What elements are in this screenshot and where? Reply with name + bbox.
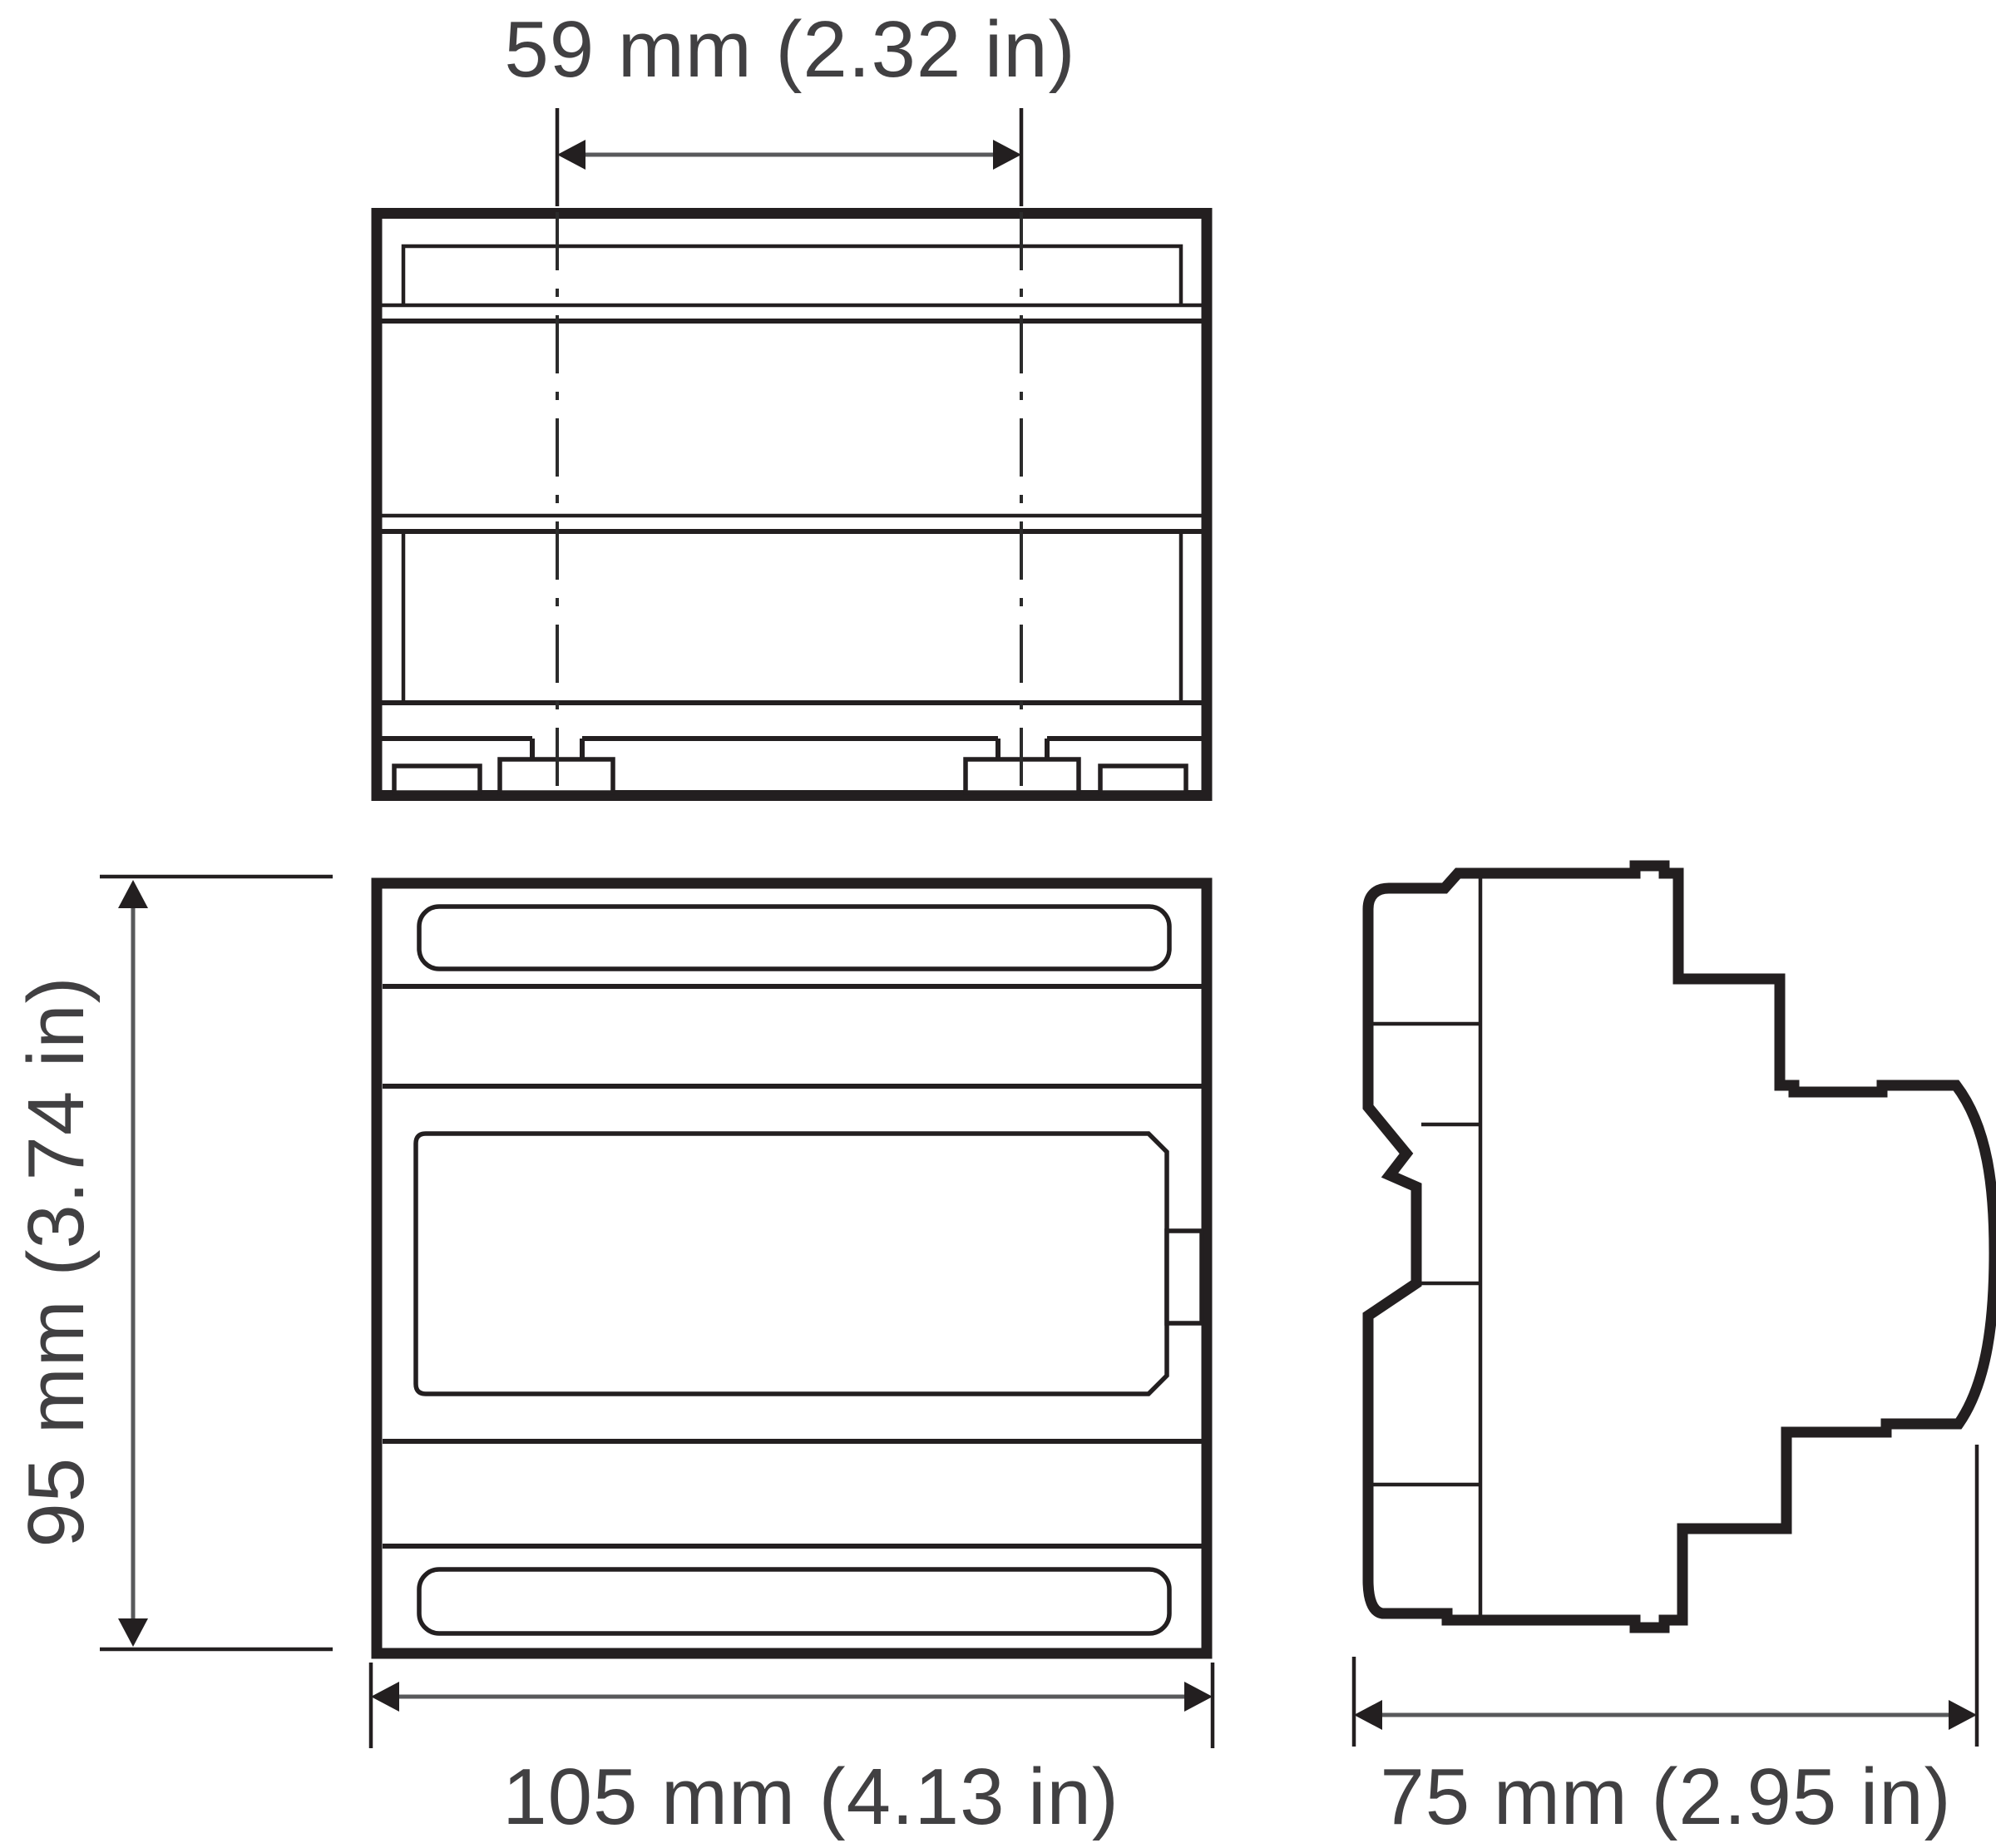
dimension-mount-spacing: 59 mm (2.32 in) [504, 5, 1075, 206]
top-view-foot-left-small [394, 766, 480, 793]
dimension-drawing: 59 mm (2.32 in) 95 mm (3.74 in) 105 mm (… [0, 0, 1996, 1848]
dimension-label-width: 105 mm (4.13 in) [502, 1752, 1119, 1841]
arrowhead-right-icon [1184, 1682, 1213, 1712]
front-view-top-terminal-cover [419, 907, 1169, 969]
top-view [377, 212, 1207, 796]
dimension-label-height: 95 mm (3.74 in) [12, 976, 101, 1547]
arrowhead-up-icon [118, 880, 148, 908]
arrowhead-right-icon [993, 140, 1021, 170]
dimension-label-depth: 75 mm (2.95 in) [1380, 1752, 1951, 1841]
top-view-foot-right-small [1100, 766, 1186, 793]
front-view-side-latch [1167, 1231, 1202, 1323]
dimension-drawing-page: 59 mm (2.32 in) 95 mm (3.74 in) 105 mm (… [0, 0, 1996, 1848]
front-view-bottom-terminal-cover [419, 1569, 1169, 1633]
arrowhead-left-icon [557, 140, 585, 170]
arrowhead-left-icon [371, 1682, 399, 1712]
top-view-body-outline [377, 214, 1207, 796]
arrowhead-down-icon [118, 1618, 148, 1647]
dimension-height: 95 mm (3.74 in) [12, 877, 333, 1649]
dim-extension-lines-bottom [371, 1663, 1213, 1748]
dimension-label-mount-spacing: 59 mm (2.32 in) [504, 5, 1075, 94]
dim-extension-ticks-top [557, 108, 1021, 206]
arrowhead-left-icon [1354, 1700, 1382, 1730]
dimension-width: 105 mm (4.13 in) [371, 1663, 1213, 1841]
arrowhead-right-icon [1949, 1700, 1977, 1730]
side-view-profile [1368, 866, 1994, 1628]
side-view [1368, 866, 1994, 1628]
front-view [377, 883, 1207, 1653]
front-view-center-panel [416, 1134, 1167, 1394]
